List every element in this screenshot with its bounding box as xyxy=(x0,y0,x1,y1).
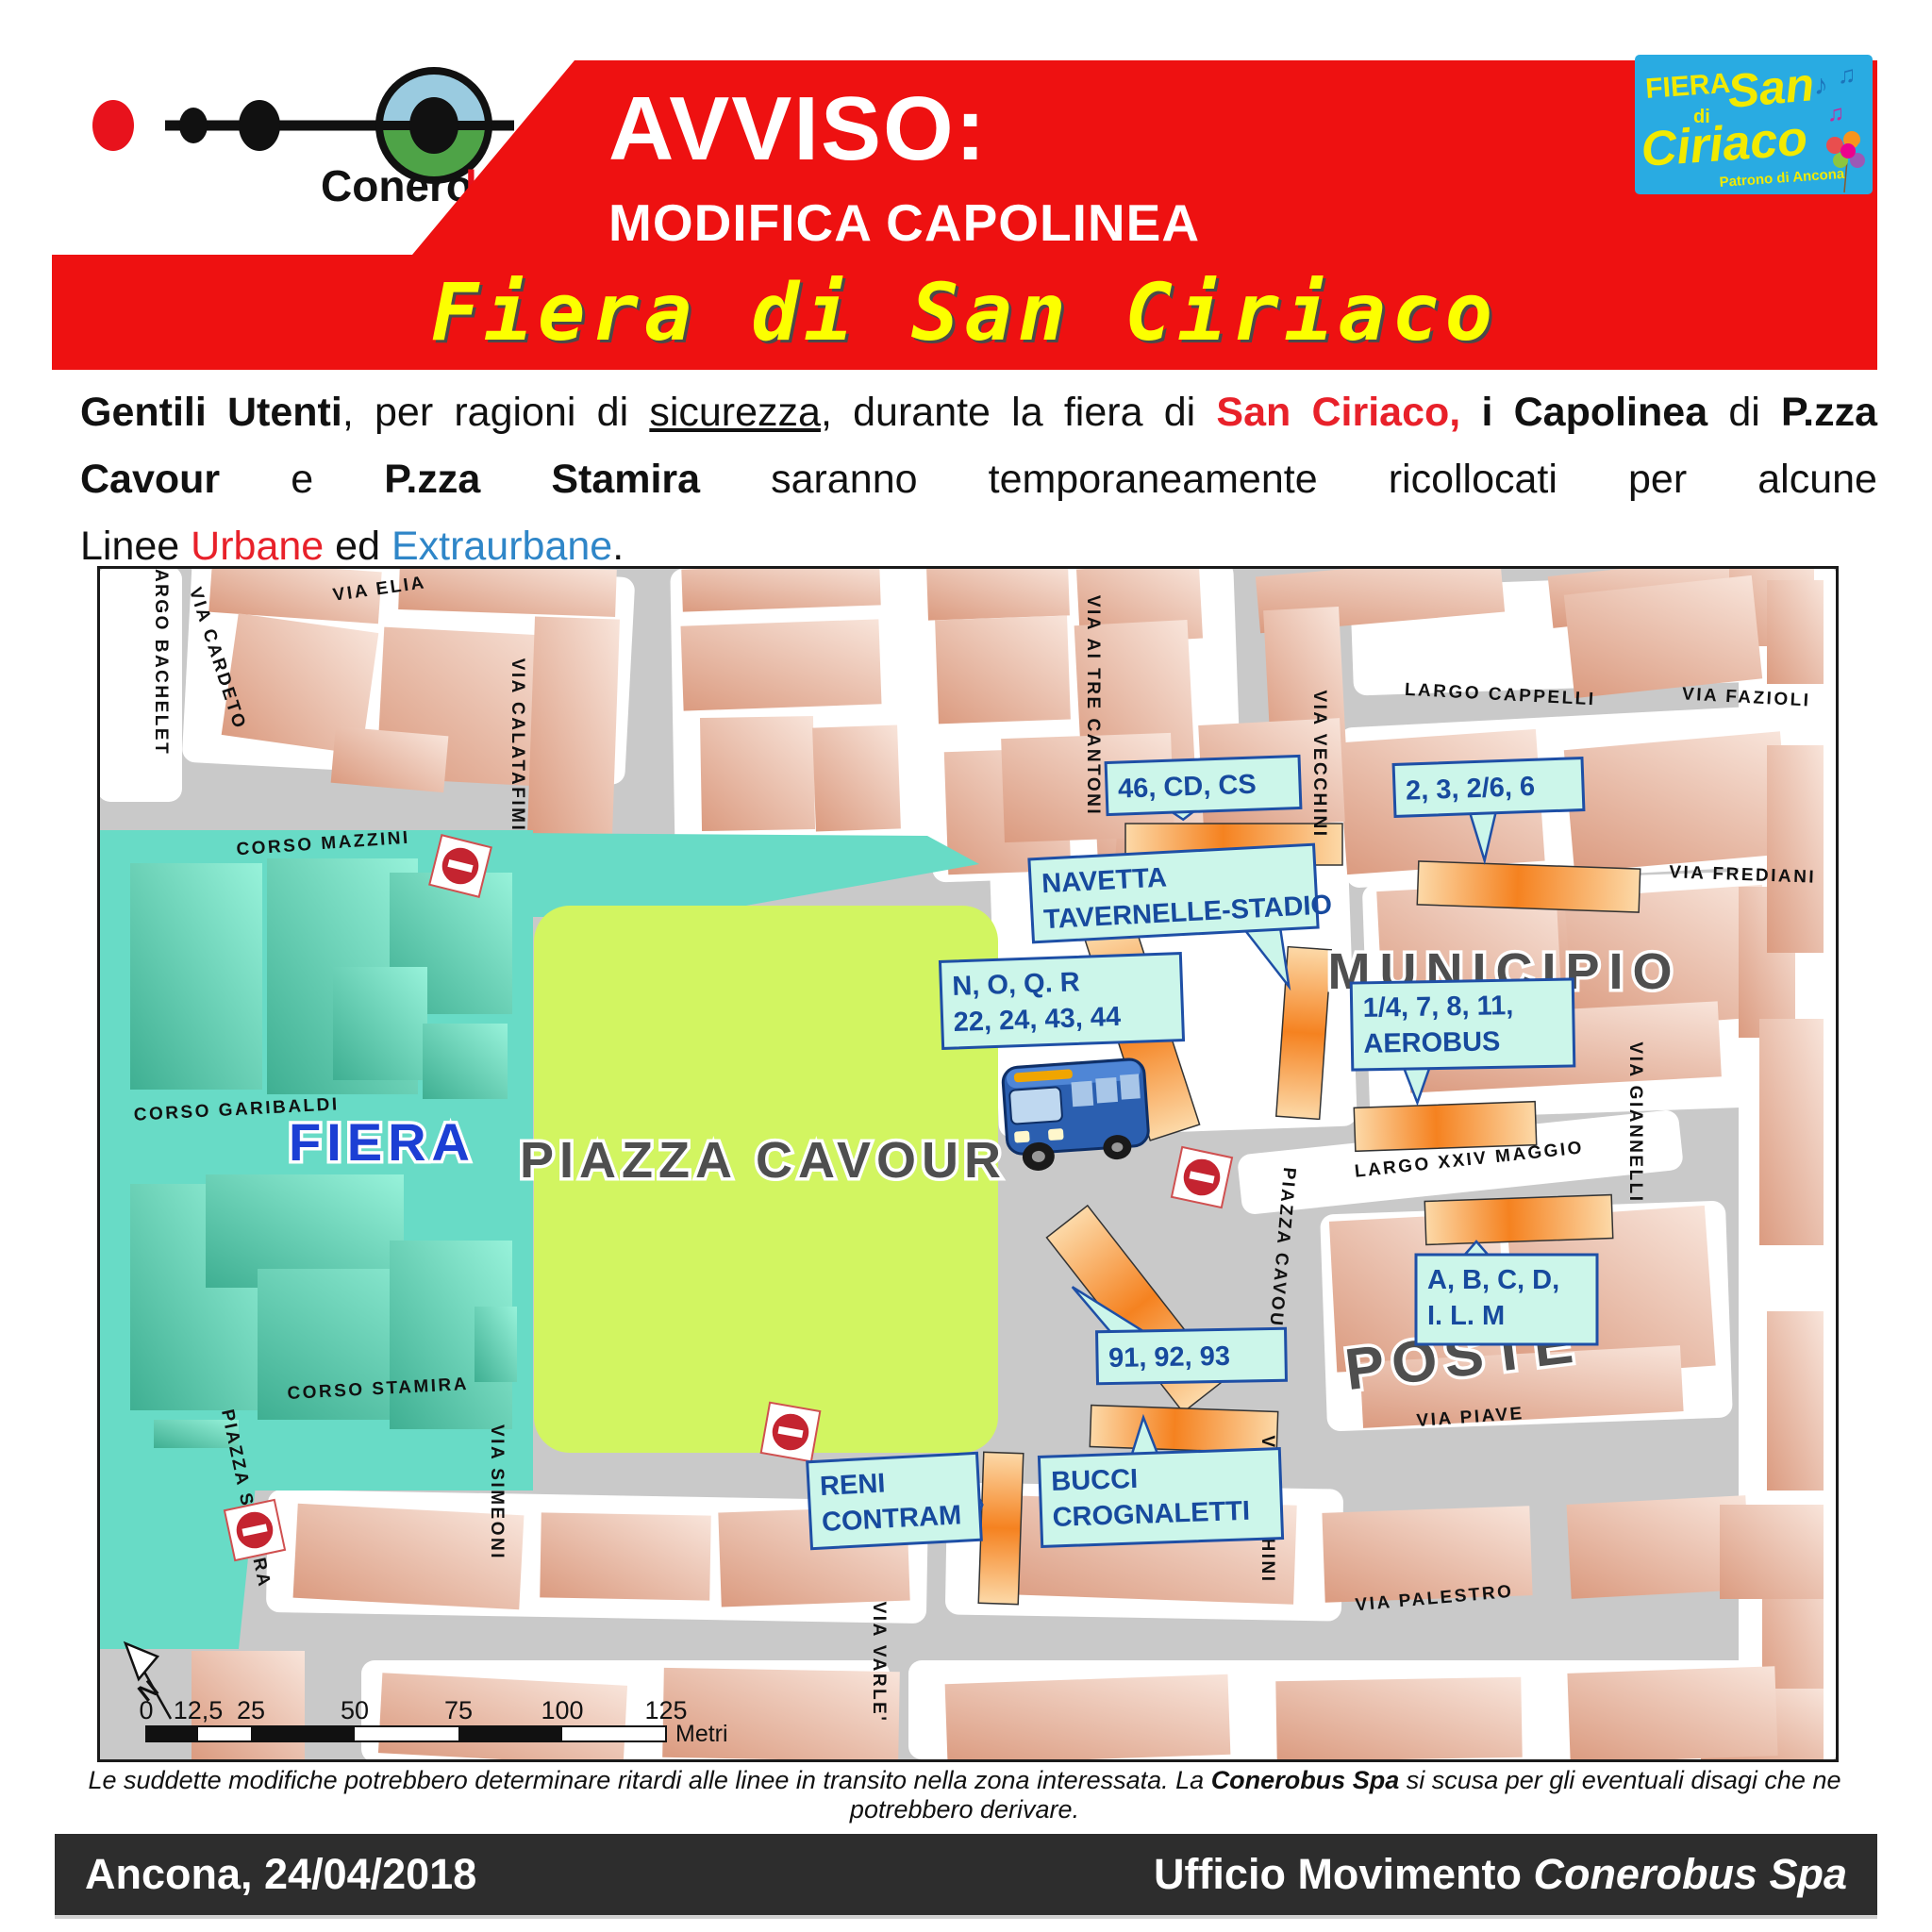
fiera-building xyxy=(423,1024,508,1099)
scale-tick: 100 xyxy=(541,1696,583,1724)
footer-office: Ufficio Movimento Conerobus Spa xyxy=(1154,1850,1847,1899)
building xyxy=(1720,1505,1824,1599)
building xyxy=(527,616,620,836)
building xyxy=(331,726,449,792)
svg-text:♪: ♪ xyxy=(1814,70,1828,101)
callout-text: 1/4, 7, 8, 11, xyxy=(1362,991,1513,1024)
callout-text: 46, CD, CS xyxy=(1118,770,1257,805)
building xyxy=(1767,745,1824,953)
street-label-via-simeoni: VIA SIMEONI xyxy=(487,1424,507,1560)
no-entry-icon-4 xyxy=(225,1500,285,1560)
intro-segment: Stamira xyxy=(551,446,700,513)
callout-text: I. L. M xyxy=(1427,1301,1505,1331)
intro-segment: , per ragioni di xyxy=(342,390,650,435)
footnote: Le suddette modifiche potrebbero determi… xyxy=(52,1766,1877,1824)
street-label-via-calatafimi: VIA CALATAFIMI xyxy=(508,658,527,833)
intro-segment: saranno xyxy=(771,446,917,513)
building xyxy=(945,1674,1231,1762)
bus-stop-zone-9 xyxy=(1090,1406,1277,1454)
street-label-largo-bachelet: LARGO BACHELET xyxy=(151,566,171,756)
fiera-building xyxy=(475,1307,517,1382)
footer-company: Conerobus Spa xyxy=(1533,1850,1847,1898)
scale-tick: 25 xyxy=(237,1696,265,1724)
street-label-via-vecchini: VIA VECCHINI xyxy=(1309,690,1329,838)
building xyxy=(398,566,617,617)
fair-logo-san: San xyxy=(1725,58,1816,118)
intro-segment: di xyxy=(1707,390,1781,435)
intro-segment: P.zza xyxy=(384,446,480,513)
footer-date: Ancona, 24/04/2018 xyxy=(85,1850,476,1899)
intro-segment: e xyxy=(291,446,313,513)
svg-text:♫: ♫ xyxy=(1827,101,1844,126)
building xyxy=(1759,1019,1824,1245)
callout-stop-n-o-q-r: N, O, Q. R22, 24, 43, 44 xyxy=(940,954,1183,1049)
intro-segment: Cavour xyxy=(80,446,220,513)
building xyxy=(662,1668,900,1761)
callout-text: AEROBUS xyxy=(1363,1026,1501,1059)
area-label-piazza-cavour: PIAZZA CAVOUR xyxy=(520,1132,1007,1189)
building xyxy=(1564,575,1762,698)
intro-segment: Extraurbane xyxy=(391,524,612,569)
intro-segment: temporaneamente xyxy=(989,446,1318,513)
intro-segment: . xyxy=(612,524,624,569)
intro-segment: Urbane xyxy=(191,524,324,569)
street-label-via-varle: VIA VARLE' xyxy=(869,1602,889,1724)
intro-segment: Linee xyxy=(80,524,191,569)
bus-stop-zone-2 xyxy=(1417,861,1640,912)
intro-line-2: CavoureP.zzaStamirasarannotemporaneament… xyxy=(80,446,1877,513)
no-entry-icon-2 xyxy=(1172,1147,1232,1207)
intro-line-1: Gentili Utenti, per ragioni di sicurezza… xyxy=(80,379,1877,446)
banner-title: AVVISO: xyxy=(608,77,988,181)
intro-segment: per xyxy=(1628,446,1687,513)
callout-text: 91, 92, 93 xyxy=(1108,1341,1231,1374)
no-entry-icon-3 xyxy=(761,1403,821,1462)
logo-black-dot-small xyxy=(179,108,208,143)
callout-text: A, B, C, D, xyxy=(1427,1265,1559,1295)
callout-text: 2, 3, 2/6, 6 xyxy=(1406,772,1536,807)
map: VIA ELIALARGO BACHELETVIA CARDETOVIA CAL… xyxy=(97,566,1839,1762)
building xyxy=(681,566,880,612)
callout-text: N, O, Q. R xyxy=(952,967,1080,1002)
logo-red-dot xyxy=(92,100,134,151)
building xyxy=(680,619,881,710)
intro-segment: sicurezza xyxy=(649,390,821,435)
building xyxy=(378,1673,627,1762)
building xyxy=(1567,1666,1777,1762)
scale-unit: Metri xyxy=(675,1721,728,1747)
bus-stop-zone-8 xyxy=(978,1452,1024,1604)
intro-segment: i Capolinea xyxy=(1481,390,1707,435)
building xyxy=(1767,1311,1824,1491)
footer-bar: Ancona, 24/04/2018 Ufficio Movimento Con… xyxy=(55,1834,1877,1915)
callout-reni-contram: RENICONTRAM xyxy=(808,1453,985,1548)
bus-stop-zone-6 xyxy=(1424,1195,1612,1245)
fiera-building xyxy=(333,967,427,1080)
callout-stop-a-b-c-d-i-l-m: A, B, C, D,I. L. M xyxy=(1416,1241,1597,1344)
intro-segment: San Ciriaco, xyxy=(1216,390,1460,435)
street-label-via-ai-tre-cantoni: VIA AI TRE CANTONI xyxy=(1083,595,1103,816)
building xyxy=(1564,731,1790,873)
callout-text: 22, 24, 43, 44 xyxy=(953,1002,1121,1038)
intro-segment: ed xyxy=(324,524,391,569)
fair-logo-fiera: FIERA xyxy=(1644,68,1731,105)
footnote-segment: Le suddette modifiche potrebbero determi… xyxy=(88,1766,1210,1794)
intro-segment: , durante la fiera di xyxy=(821,390,1216,435)
svg-text:♫: ♫ xyxy=(1838,60,1857,89)
callout-text: BUCCI xyxy=(1051,1464,1139,1497)
fiera-building xyxy=(130,863,262,1090)
scale-tick: 50 xyxy=(341,1696,369,1724)
intro-segment: Gentili Utenti xyxy=(80,390,342,435)
scale-tick: 75 xyxy=(444,1696,473,1724)
area-label-fiera: FIERA xyxy=(289,1112,475,1172)
building xyxy=(812,724,901,831)
logo-brand-black: Conero xyxy=(321,161,473,210)
intro-segment xyxy=(1460,390,1481,435)
logo-black-dot xyxy=(239,100,280,151)
building xyxy=(700,716,815,831)
intro-paragraph: Gentili Utenti, per ragioni di sicurezza… xyxy=(80,379,1877,580)
building xyxy=(1767,580,1824,684)
event-bar: Fiera di San Ciriaco xyxy=(52,255,1877,370)
building xyxy=(926,566,1070,621)
banner-subtitle: MODIFICA CAPOLINEA xyxy=(608,192,1200,253)
footnote-segment: Conerobus Spa xyxy=(1211,1766,1400,1794)
building xyxy=(935,616,1071,724)
bus-stop-zone-5 xyxy=(1354,1102,1536,1152)
scale-tick: 12,5 xyxy=(174,1696,224,1724)
intro-segment: P.zza xyxy=(1781,390,1877,435)
fiera-san-ciriaco-logo: FIERA di San Ciriaco Patrono di Ancona ♪… xyxy=(1635,55,1873,194)
no-entry-icon-1 xyxy=(429,835,491,896)
callout-text: RENI xyxy=(819,1469,886,1503)
fair-logo-ciriaco: Ciriaco xyxy=(1640,111,1809,177)
street-label-via-giannelli: VIA GIANNELLI xyxy=(1625,1041,1645,1203)
building xyxy=(1275,1677,1522,1762)
intro-segment: alcune xyxy=(1757,446,1877,513)
building xyxy=(540,1512,711,1600)
event-bar-text: Fiera di San Ciriaco xyxy=(431,266,1498,358)
intro-segment: ricollocati xyxy=(1389,446,1557,513)
scale-tick: 0 xyxy=(139,1696,153,1724)
